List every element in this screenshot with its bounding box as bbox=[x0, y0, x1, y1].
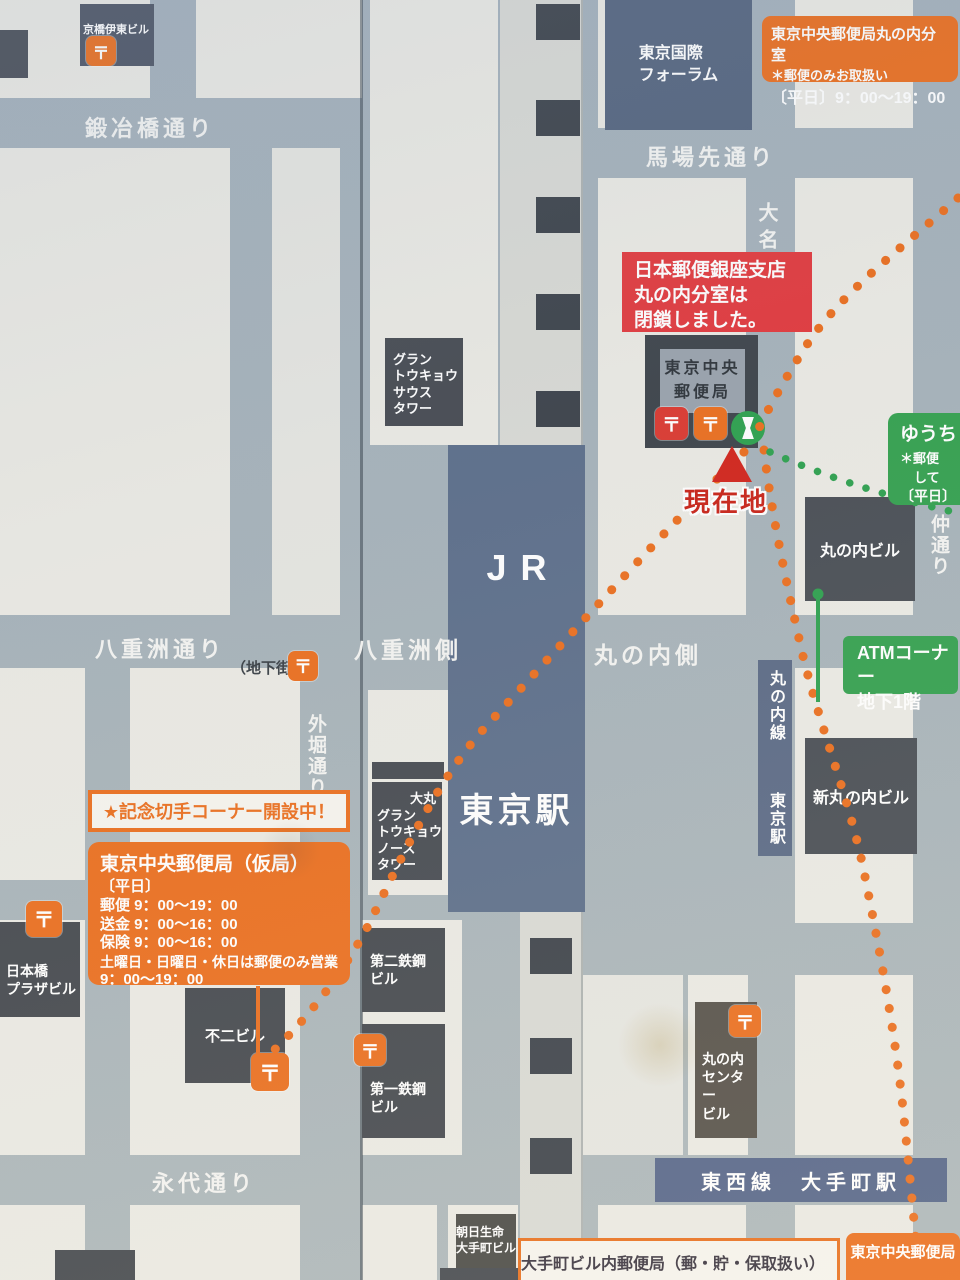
building-label: 新丸の内ビル bbox=[813, 784, 909, 808]
building-jr-tokyo-station: JR 東京駅 bbox=[448, 445, 585, 912]
atm-icon bbox=[731, 411, 765, 445]
building-label: グラン トウキョウ サウス タワー bbox=[393, 352, 458, 417]
marunouchi-line-band: 丸の内線 東京駅 bbox=[758, 660, 792, 856]
current-location-marker-icon bbox=[712, 446, 752, 482]
building-label: 第二鉄鋼 ビル bbox=[370, 952, 426, 988]
callout-closed-notice: 日本郵便銀座支店 丸の内分室は 閉鎖しました。 bbox=[622, 252, 812, 332]
rail-tie bbox=[536, 100, 580, 136]
building-tekko-2: 第二鉄鋼 ビル bbox=[362, 928, 445, 1012]
marunouchi-line-station-label: 東京駅 bbox=[763, 792, 787, 846]
callout-line: して bbox=[900, 467, 960, 486]
callout-note: ＊郵便のみお取扱い bbox=[771, 65, 949, 84]
rail-tie bbox=[536, 294, 580, 330]
rail-tie bbox=[536, 4, 580, 40]
callout-title: 東京中央郵便局（仮局） bbox=[100, 849, 338, 876]
building-tekko-1: 〒 第一鉄鋼 ビル bbox=[362, 1024, 445, 1138]
callout-line: 9：00～19：00 bbox=[100, 971, 338, 990]
building-label: 丸の内 センター ビル bbox=[702, 1050, 757, 1123]
post-office-icon: 〒 bbox=[694, 407, 727, 440]
street-naka-dori: 仲通り bbox=[925, 514, 952, 577]
rail-tie bbox=[536, 197, 580, 233]
city-block bbox=[130, 1205, 300, 1280]
building-small bbox=[440, 1268, 525, 1280]
label-marunouchi-side: 丸の内側 bbox=[594, 636, 702, 670]
rail-tie bbox=[530, 938, 572, 974]
tozai-line-label: 東西線 大手町駅 bbox=[701, 1166, 901, 1195]
city-block bbox=[0, 668, 85, 880]
callout-bunshitsu-hours: 東京中央郵便局丸の内分室 ＊郵便のみお取扱い 〔平日〕9：00～19：00 bbox=[762, 16, 958, 82]
tozai-line-band: 東西線 大手町駅 bbox=[655, 1158, 947, 1202]
callout-line: 〔平日〕 bbox=[100, 878, 338, 897]
atm-icon-glyph bbox=[741, 417, 755, 439]
post-office-icon: 〒 bbox=[354, 1034, 386, 1066]
rail-tie bbox=[530, 1138, 572, 1174]
building-asahi-seimei: 朝日生命 大手町ビル bbox=[456, 1214, 516, 1268]
current-location-label: 現在地 bbox=[684, 482, 768, 519]
street-babasaki-dori: 馬場先通り bbox=[646, 140, 776, 172]
label-yaesu-side: 八重洲側 bbox=[354, 631, 462, 665]
building-tokyo-international-forum: 東京国際 フォーラム bbox=[605, 0, 752, 130]
post-office-icon: 〒 bbox=[251, 1053, 289, 1091]
post-office-icon-red: 〒 bbox=[655, 407, 688, 440]
building-label: 日本橋 プラザビル bbox=[6, 962, 76, 998]
city-block bbox=[362, 1205, 437, 1280]
building-tokyo-central-post-office: 東京中央 郵便局 〒 〒 bbox=[645, 335, 758, 448]
building-shin-marunouchi: 新丸の内ビル bbox=[805, 738, 917, 854]
building-label: 京橋伊東ビル bbox=[83, 21, 149, 37]
callout-yucho: ゆうち ＊郵便 して 〔平日〕 bbox=[888, 413, 960, 505]
building-kyobashi-ito: 京橋伊東ビル 〒 bbox=[80, 4, 154, 66]
building-label: 東京国際 フォーラム bbox=[639, 43, 719, 88]
callout-temp-office: 東京中央郵便局（仮局） 〔平日〕 郵便 9：00～19：00 送金 9：00～1… bbox=[88, 842, 350, 985]
building-label: 東京中央 郵便局 bbox=[660, 349, 745, 413]
city-block bbox=[0, 148, 230, 615]
city-block bbox=[272, 148, 340, 615]
post-office-icon: 〒 bbox=[288, 651, 318, 681]
city-block bbox=[196, 0, 362, 98]
callout-line: 土曜日・日曜日・休日は郵便のみ営業 bbox=[100, 953, 338, 971]
callout-line: ＊郵便 bbox=[900, 448, 960, 467]
tokyo-station-area-map: 京橋伊東ビル 〒 東京国際 フォーラム グラン トウキョウ サウス タワー JR… bbox=[0, 0, 960, 1280]
city-block bbox=[583, 975, 683, 1155]
building-nihonbashi-plaza: 〒 日本橋 プラザビル bbox=[0, 922, 80, 1017]
building-marunouchi: 丸の内ビル bbox=[805, 497, 915, 601]
callout-line: ゆうち bbox=[900, 419, 960, 446]
building-label: 第一鉄鋼 ビル bbox=[370, 1080, 426, 1116]
street-yaesu-dori: 八重洲通り bbox=[95, 632, 225, 664]
rail-tie bbox=[536, 391, 580, 427]
callout-hours: 〔平日〕9：00～19：00 bbox=[771, 84, 949, 108]
callout-line: 保険 9：00～16：00 bbox=[100, 934, 338, 953]
building-label: 丸の内ビル bbox=[820, 537, 900, 561]
post-office-icon: 〒 bbox=[86, 36, 116, 66]
building-daimaru-north-tower: 大丸 グラン トウキョウ ノース タワー bbox=[372, 782, 442, 880]
callout-atm-corner: ATMコーナー 地下1階 bbox=[843, 636, 958, 694]
street-sotobori-dori: 外堀通り bbox=[302, 714, 329, 798]
callout-bottom-orange: 東京中央郵便局 bbox=[846, 1233, 960, 1280]
city-block bbox=[795, 975, 913, 1155]
building-gran-tokyo-south-tower: グラン トウキョウ サウス タワー bbox=[385, 338, 463, 426]
rail-tie bbox=[530, 1038, 572, 1074]
callout-stamp-banner: ★記念切手コーナー開設中！ bbox=[88, 790, 350, 832]
station-jr-label: JR bbox=[448, 547, 585, 589]
street-eitai-dori: 永代通り bbox=[152, 1166, 256, 1198]
street-kajibashi-dori: 鍛冶橋通り bbox=[85, 111, 215, 143]
building-label: 大丸 bbox=[410, 788, 436, 807]
building-label: 不二ビル bbox=[205, 1025, 265, 1046]
building-label: 朝日生命 大手町ビル bbox=[456, 1225, 516, 1256]
callout-otemachi-note: 大手町ビル内郵便局（郵・貯・保取扱い）と bbox=[518, 1238, 840, 1280]
building-bar bbox=[372, 762, 444, 779]
building-small bbox=[0, 30, 28, 78]
station-name-label: 東京駅 bbox=[448, 783, 585, 832]
post-office-icon: 〒 bbox=[26, 901, 62, 937]
post-office-icon: 〒 bbox=[729, 1005, 761, 1037]
callout-line: 〔平日〕 bbox=[900, 486, 960, 506]
callout-line: 郵便 9：00～19：00 bbox=[100, 897, 338, 916]
building-fuji: 不二ビル 〒 bbox=[185, 988, 285, 1083]
marunouchi-line-label: 丸の内線 bbox=[763, 670, 787, 742]
callout-line: 送金 9：00～16：00 bbox=[100, 916, 338, 935]
building-marunouchi-center: 〒 丸の内 センター ビル bbox=[695, 1002, 757, 1138]
callout-title: 東京中央郵便局丸の内分室 bbox=[771, 23, 949, 65]
building-label: グラン トウキョウ ノース タワー bbox=[377, 808, 442, 873]
building-small bbox=[55, 1250, 135, 1280]
